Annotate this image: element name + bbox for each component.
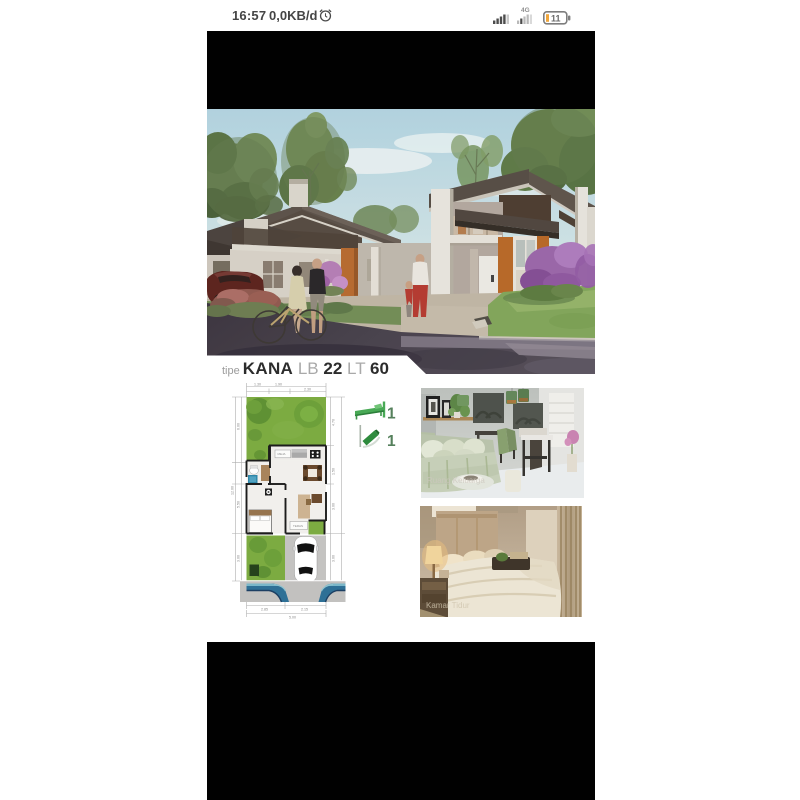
- svg-text:2.85: 2.85: [261, 608, 268, 612]
- svg-text:1: 1: [387, 406, 396, 423]
- svg-text:TERAS: TERAS: [293, 524, 303, 528]
- svg-text:Ruang Keluarga: Ruang Keluarga: [427, 476, 485, 485]
- svg-text:6.00: 6.00: [237, 423, 241, 430]
- svg-text:Kamar Tidur: Kamar Tidur: [426, 601, 470, 610]
- svg-text:1.50: 1.50: [332, 468, 336, 475]
- svg-text:4G: 4G: [521, 7, 530, 14]
- svg-text:MEJA: MEJA: [278, 452, 286, 456]
- svg-text:3.00: 3.00: [332, 555, 336, 562]
- svg-text:3.00: 3.00: [237, 555, 241, 562]
- svg-text:3.00: 3.00: [332, 503, 336, 510]
- svg-text:5.00: 5.00: [289, 616, 296, 620]
- svg-text:1.90: 1.90: [275, 382, 282, 386]
- svg-text:2.30: 2.30: [304, 387, 311, 391]
- svg-text:1: 1: [387, 433, 396, 450]
- svg-text:12.00: 12.00: [231, 486, 235, 495]
- svg-text:11: 11: [551, 14, 561, 24]
- svg-text:2.15: 2.15: [301, 608, 308, 612]
- svg-text:5.50: 5.50: [237, 501, 241, 508]
- svg-text:4.70: 4.70: [332, 419, 336, 426]
- svg-text:1.30: 1.30: [254, 382, 261, 386]
